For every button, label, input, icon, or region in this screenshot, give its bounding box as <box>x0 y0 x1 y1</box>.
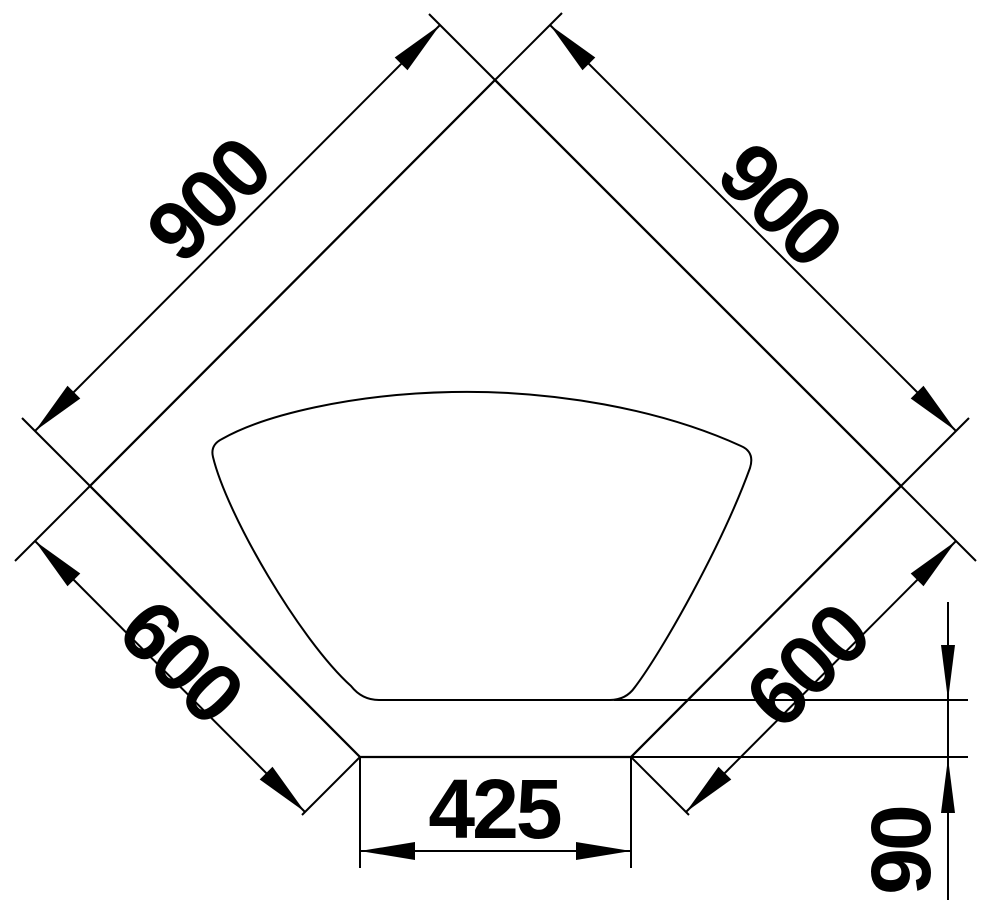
arrow-425-left <box>360 842 415 860</box>
arrow-600-right-lower <box>686 767 731 812</box>
apex-left-extension-line <box>495 13 562 80</box>
dim-label-90-right: 90 <box>859 807 943 894</box>
dim-label-425-bottom: 425 <box>428 767 559 851</box>
right-vertex-front-extension-line <box>901 418 969 486</box>
bottom-right-corner-tick <box>631 757 689 815</box>
arrow-900-right-upper <box>550 25 595 70</box>
bowl-outline <box>212 392 751 700</box>
arrow-900-left-upper <box>395 25 440 70</box>
left-vertex-edge-extension-line <box>15 486 90 561</box>
right-vertex-edge-extension-line <box>901 486 976 561</box>
bottom-left-corner-tick <box>302 757 360 815</box>
left-vertex-front-extension-line <box>22 418 90 486</box>
arrow-600-left-lower <box>260 767 305 812</box>
arrow-900-left-lower <box>35 386 80 431</box>
technical-drawing-canvas: 900 900 600 600 425 90 <box>0 0 1000 905</box>
arrow-90-upper <box>941 645 955 700</box>
arrow-900-right-lower <box>911 386 956 431</box>
arrow-90-lower <box>941 758 955 813</box>
arrow-600-left-upper <box>35 541 80 586</box>
apex-right-extension-line <box>429 14 495 80</box>
arrow-600-right-upper <box>911 541 956 586</box>
arrow-425-right <box>576 842 631 860</box>
